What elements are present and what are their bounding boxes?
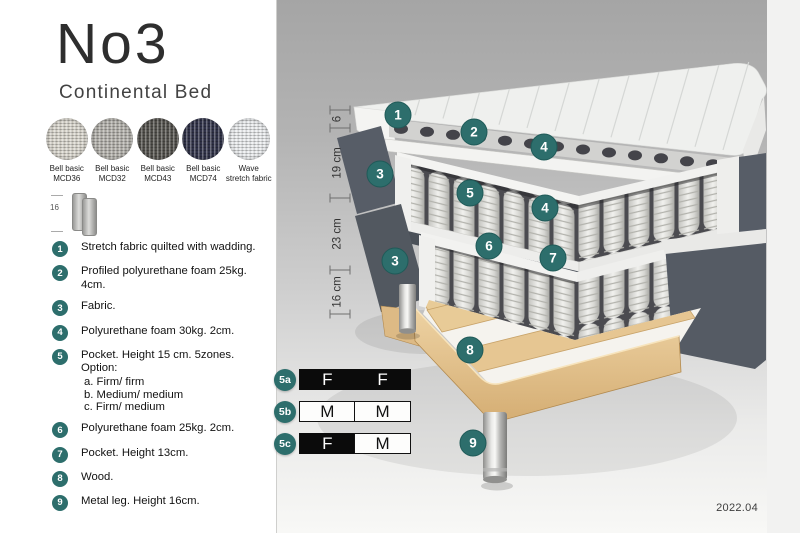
callout-badge-7: 7 [540, 245, 566, 271]
firmness-badge: 5c [274, 433, 296, 455]
page-title: No3 [56, 14, 170, 74]
legend-text: Profiled polyurethane foam 25kg. 4cm. [81, 265, 272, 292]
svg-text:6: 6 [485, 239, 493, 254]
legend-item-8: 8 Wood. [52, 471, 272, 487]
legend-badge: 6 [52, 422, 68, 438]
page-subtitle: Continental Bed [59, 82, 212, 104]
firmness-cell: F [354, 369, 411, 390]
legend-options: a. Firm/ firm b. Medium/ medium c. Firm/… [81, 376, 272, 414]
firmness-bar: M M [299, 401, 411, 422]
legend-badge: 1 [52, 241, 68, 257]
callout-badge-2: 2 [461, 119, 487, 145]
legend-text: Polyurethane foam 25kg. 2cm. [81, 422, 234, 436]
legend-option-c: c. Firm/ medium [84, 401, 272, 414]
firmness-bar: F M [299, 433, 411, 454]
fabric-swatch-circle [228, 118, 270, 160]
page: No3 Continental Bed Bell basicMCD36 Bell… [0, 0, 800, 533]
page-margin-strip [767, 0, 800, 533]
fabric-swatch-circle [46, 118, 88, 160]
firmness-cell: M [354, 401, 411, 422]
dimension-label-19cm: 19 cm [332, 147, 344, 178]
legend-item-6: 6 Polyurethane foam 25kg. 2cm. [52, 422, 272, 438]
firmness-cell: F [299, 369, 356, 390]
firmness-bar: F F [299, 369, 411, 390]
legend-text: Pocket. Height 15 cm. 5zones. Option: [81, 349, 272, 376]
legend-badge: 3 [52, 300, 68, 316]
firmness-row-5a: 5a F F [274, 369, 411, 390]
fabric-swatch-mcd74: Bell basicMCD74 [181, 118, 227, 183]
svg-text:5: 5 [466, 186, 474, 201]
dimension-label-16cm: 16 cm [332, 276, 344, 307]
swatch-label: Bell basicMCD32 [95, 164, 129, 183]
firmness-badge: 5a [274, 369, 296, 391]
legend-badge: 7 [52, 447, 68, 463]
swatch-label: Wavestretch fabric [226, 164, 272, 183]
callout-badge-6: 6 [476, 233, 502, 259]
firmness-row-5b: 5b M M [274, 401, 411, 422]
legend-item-1: 1 Stretch fabric quilted with wadding. [52, 241, 272, 257]
fabric-swatch-circle [137, 118, 179, 160]
fabric-swatch-circle [182, 118, 224, 160]
leg-height-icon: 16 [50, 188, 120, 238]
legend-text: Pocket. Height 13cm. [81, 447, 188, 461]
legend-badge: 5 [52, 349, 68, 365]
legend-item-9: 9 Metal leg. Height 16cm. [52, 495, 272, 511]
swatch-label: Bell basicMCD74 [186, 164, 220, 183]
legend-item-4: 4 Polyurethane foam 30kg. 2cm. [52, 325, 272, 341]
firmness-cell: M [299, 401, 356, 422]
legend-text: Wood. [81, 471, 113, 485]
svg-text:8: 8 [466, 343, 474, 358]
svg-text:3: 3 [376, 167, 384, 182]
legend-option-b: b. Medium/ medium [84, 389, 272, 402]
leg-icon-height-label: 16 [50, 203, 59, 212]
callout-badge-1: 1 [385, 102, 411, 128]
callout-badge-4-lower: 4 [532, 195, 558, 221]
legend-text: Polyurethane foam 30kg. 2cm. [81, 325, 234, 339]
legend-item-2: 2 Profiled polyurethane foam 25kg. 4cm. [52, 265, 272, 292]
firmness-badge: 5b [274, 401, 296, 423]
legend-text: Metal leg. Height 16cm. [81, 495, 200, 509]
svg-text:2: 2 [470, 125, 478, 140]
firmness-cell: F [299, 433, 356, 454]
svg-text:3: 3 [391, 254, 399, 269]
fabric-swatch-mcd36: Bell basicMCD36 [44, 118, 90, 183]
left-panel: No3 Continental Bed Bell basicMCD36 Bell… [0, 0, 276, 533]
legend-list: 1 Stretch fabric quilted with wadding. 2… [52, 241, 272, 519]
dimension-label-6: 6 [332, 116, 344, 122]
callout-badge-8: 8 [457, 337, 483, 363]
svg-text:4: 4 [541, 201, 549, 216]
fabric-swatch-mcd43: Bell basicMCD43 [135, 118, 181, 183]
svg-text:7: 7 [549, 251, 557, 266]
firmness-table: 5a F F 5b M M 5c F M [274, 369, 411, 465]
side-fabric-right-lower [665, 233, 766, 369]
legend-item-5: 5 Pocket. Height 15 cm. 5zones. Option: … [52, 349, 272, 414]
legend-badge: 9 [52, 495, 68, 511]
leg-icon-rule-top [51, 195, 63, 196]
dimension-label-23cm: 23 cm [332, 218, 344, 249]
frame-left-post [419, 235, 435, 310]
svg-text:4: 4 [540, 140, 548, 155]
legend-text: Stretch fabric quilted with wadding. [81, 241, 256, 255]
legend-badge: 4 [52, 325, 68, 341]
leg-icon-rule-bottom [51, 231, 63, 232]
legend-item-7: 7 Pocket. Height 13cm. [52, 447, 272, 463]
legend-item-3: 3 Fabric. [52, 300, 272, 316]
callout-badge-5: 5 [457, 180, 483, 206]
fabric-swatch-wave: Wavestretch fabric [226, 118, 272, 183]
legend-option-a: a. Firm/ firm [84, 376, 272, 389]
swatch-label: Bell basicMCD36 [50, 164, 84, 183]
callout-badge-3-upper: 3 [367, 161, 393, 187]
version-label: 2022.04 [276, 502, 758, 514]
firmness-row-5c: 5c F M [274, 433, 411, 454]
firmness-cell: M [354, 433, 411, 454]
legend-badge: 8 [52, 471, 68, 487]
leg-cylinder-icon [82, 198, 97, 236]
legend-badge: 2 [52, 265, 68, 281]
swatch-label: Bell basicMCD43 [141, 164, 175, 183]
fabric-swatch-mcd32: Bell basicMCD32 [90, 118, 136, 183]
svg-text:9: 9 [469, 436, 477, 451]
legend-text: Fabric. [81, 300, 116, 314]
callout-badge-4-upper: 4 [531, 134, 557, 160]
callout-badge-9: 9 [460, 430, 486, 456]
fabric-swatch-row: Bell basicMCD36 Bell basicMCD32 Bell bas… [44, 118, 272, 183]
callout-badge-3-lower: 3 [382, 248, 408, 274]
fabric-swatch-circle [91, 118, 133, 160]
svg-text:1: 1 [394, 108, 402, 123]
